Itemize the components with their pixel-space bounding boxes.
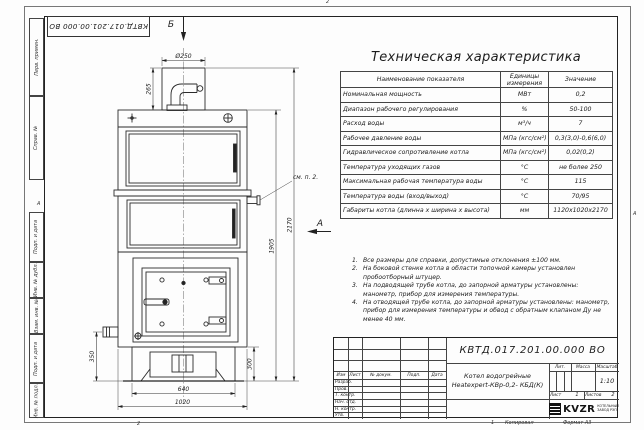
flange-band <box>114 190 251 196</box>
view-a-arrow-head <box>307 229 317 234</box>
hinge-bolt <box>220 319 224 323</box>
upper-door-inner <box>129 134 237 183</box>
dim-265: 265 <box>146 83 153 95</box>
base-gusset-right <box>216 369 225 381</box>
flue-elbow-outer <box>171 84 197 105</box>
view-arrows <box>181 17 331 235</box>
left-pipe-stub <box>103 327 118 337</box>
flue-elbow-inner <box>180 93 197 106</box>
upper-door-hinge <box>234 144 237 172</box>
door-bolt <box>204 278 208 282</box>
boiler-outline <box>103 68 260 381</box>
right-sampling-fitting <box>247 197 257 204</box>
dim-1020: 1020 <box>175 399 190 406</box>
dim-640: 640 <box>178 386 190 393</box>
dim-1905: 1905 <box>269 238 276 253</box>
middle-door-hinge <box>233 209 236 238</box>
door-bolt <box>160 278 164 282</box>
flue-elbow-cap <box>197 86 203 92</box>
furnace-door <box>133 258 238 342</box>
handle-pivot <box>163 300 167 304</box>
upper-door <box>126 131 240 186</box>
dim-2170: 2170 <box>287 217 294 232</box>
furnace-door-panel <box>146 272 226 332</box>
dim-350: 350 <box>89 351 96 363</box>
base-inner <box>150 352 216 377</box>
base-gusset-left <box>141 369 150 381</box>
boiler-drawing: Ø250 265 2170 1905 350 300 640 1020 см. … <box>0 0 644 430</box>
callout-see-note-2: см. п. 2. <box>293 174 318 181</box>
door-bolt <box>160 322 164 326</box>
furnace-door-frame <box>142 268 230 336</box>
hinge-bolt <box>220 279 224 283</box>
dimension-texts: Ø250 265 2170 1905 350 300 640 1020 см. … <box>89 20 323 406</box>
dim-d250: Ø250 <box>174 53 191 60</box>
view-b-arrow-head <box>181 32 186 41</box>
dim-300: 300 <box>247 358 254 370</box>
view-a-label: А <box>316 219 323 229</box>
door-bolt <box>204 322 208 326</box>
dimension-arrows <box>97 61 295 407</box>
door-bolt-center <box>182 281 185 284</box>
middle-body <box>118 196 247 252</box>
ash-opening <box>172 355 193 372</box>
view-b-label: Б <box>168 20 174 30</box>
right-fitting-cap <box>257 196 260 205</box>
